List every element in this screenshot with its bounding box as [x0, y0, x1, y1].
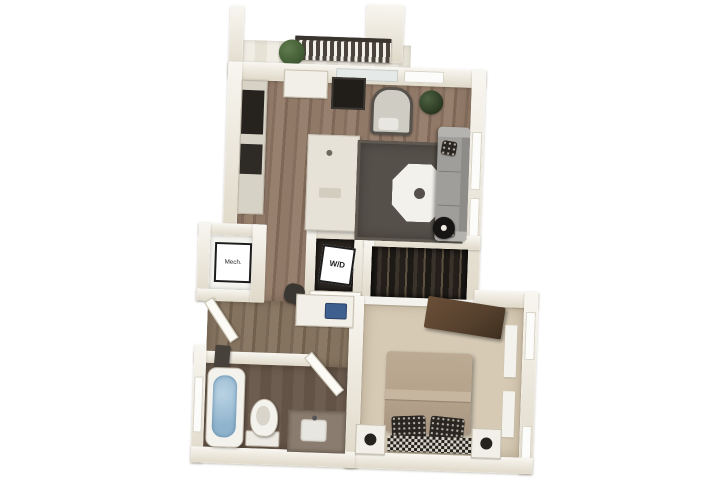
balcony-railing — [295, 36, 392, 63]
kitchen-wall-cabinet — [283, 69, 328, 99]
laundry-label: W/D — [329, 260, 346, 270]
desk — [295, 294, 354, 328]
bedroom-window-1 — [524, 312, 536, 360]
vanity-sink — [300, 419, 327, 442]
bedroom-window-sill-2 — [502, 391, 516, 437]
bedroom-window-2 — [521, 426, 532, 460]
living-window-1 — [470, 132, 482, 190]
accent-chair — [370, 86, 414, 135]
bathtub-water — [211, 375, 237, 438]
top-wall-window — [404, 70, 444, 83]
mech-closet-label: Mech. — [224, 259, 241, 266]
nightstand-left — [355, 424, 386, 455]
stove — [240, 144, 263, 175]
nightstand-right — [471, 428, 502, 459]
floor-lamp-bulb — [441, 225, 447, 231]
laundry-label-card: W/D — [318, 244, 356, 286]
nightstand-lamp-left — [364, 433, 376, 445]
desk-laptop — [325, 303, 348, 320]
living-window-2 — [468, 198, 479, 238]
accent-chair-seat — [378, 118, 398, 131]
wall-tv — [331, 77, 366, 110]
bathtub — [205, 367, 246, 448]
nightstand-lamp-right — [480, 437, 492, 449]
island-decor — [319, 188, 341, 199]
toilet-bowl — [249, 398, 278, 437]
bed-blanket-trim — [387, 435, 476, 454]
mech-closet-wall-right — [250, 224, 267, 302]
floor-plan: Mech. W/D — [0, 0, 720, 480]
refrigerator — [241, 90, 265, 135]
toilet-lid-detail — [256, 405, 271, 425]
sofa-cushion-seam-2 — [438, 205, 460, 207]
island-faucet — [326, 150, 332, 156]
bathroom-vanity — [287, 410, 346, 454]
coffee-table-decor — [414, 188, 425, 199]
bed-fold — [385, 389, 471, 402]
kitchen-island — [305, 134, 360, 232]
sofa-cushion-seam-1 — [439, 171, 461, 173]
sofa-pillow-1 — [441, 140, 458, 156]
sofa-arm-top — [438, 127, 470, 138]
bedroom-closet-interior — [370, 246, 468, 299]
mech-closet-label-card: Mech. — [214, 242, 252, 283]
bedroom-window-sill-1 — [504, 325, 518, 377]
floor-plan-canvas: Mech. W/D — [0, 0, 720, 480]
